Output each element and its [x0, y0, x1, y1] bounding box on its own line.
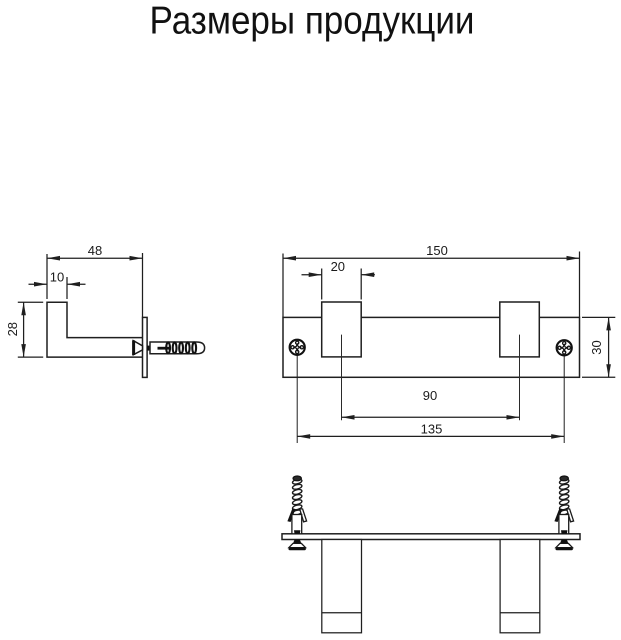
- svg-text:Размеры продукции: Размеры продукции: [150, 0, 475, 43]
- svg-text:20: 20: [331, 259, 345, 274]
- svg-text:150: 150: [426, 243, 448, 258]
- svg-text:28: 28: [5, 322, 20, 336]
- svg-text:10: 10: [50, 269, 64, 284]
- svg-text:90: 90: [423, 388, 437, 403]
- svg-text:135: 135: [421, 422, 443, 437]
- svg-text:30: 30: [589, 340, 604, 354]
- svg-text:48: 48: [88, 243, 102, 258]
